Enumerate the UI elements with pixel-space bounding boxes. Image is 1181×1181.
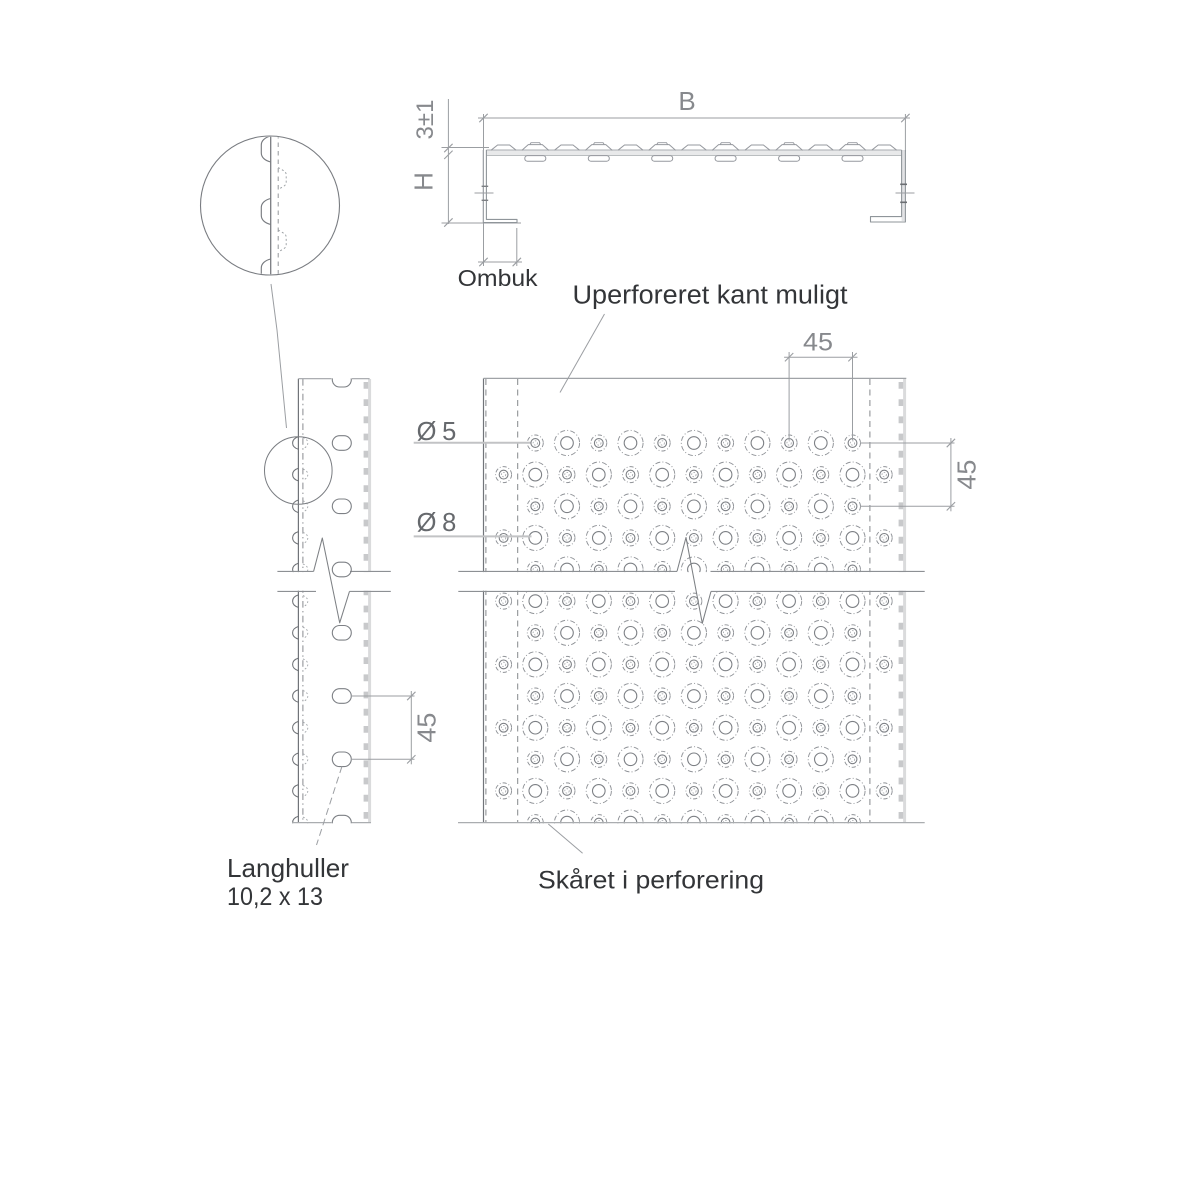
svg-text:Ø: Ø (417, 509, 437, 537)
svg-text:3±1: 3±1 (412, 100, 439, 140)
svg-text:Ombuk: Ombuk (458, 265, 538, 291)
svg-text:5: 5 (442, 418, 456, 446)
svg-text:Langhuller: Langhuller (227, 853, 349, 883)
svg-text:8: 8 (442, 509, 456, 537)
svg-text:Ø: Ø (417, 418, 437, 446)
svg-text:45: 45 (951, 460, 981, 490)
svg-text:Skåret i perforering: Skåret i perforering (538, 867, 764, 895)
svg-text:45: 45 (412, 713, 442, 743)
svg-text:H: H (409, 172, 439, 191)
svg-text:45: 45 (803, 329, 833, 357)
svg-text:B: B (678, 86, 695, 116)
svg-text:10,2 x 13: 10,2 x 13 (227, 883, 323, 911)
svg-text:Uperforeret kant muligt: Uperforeret kant muligt (573, 282, 848, 310)
